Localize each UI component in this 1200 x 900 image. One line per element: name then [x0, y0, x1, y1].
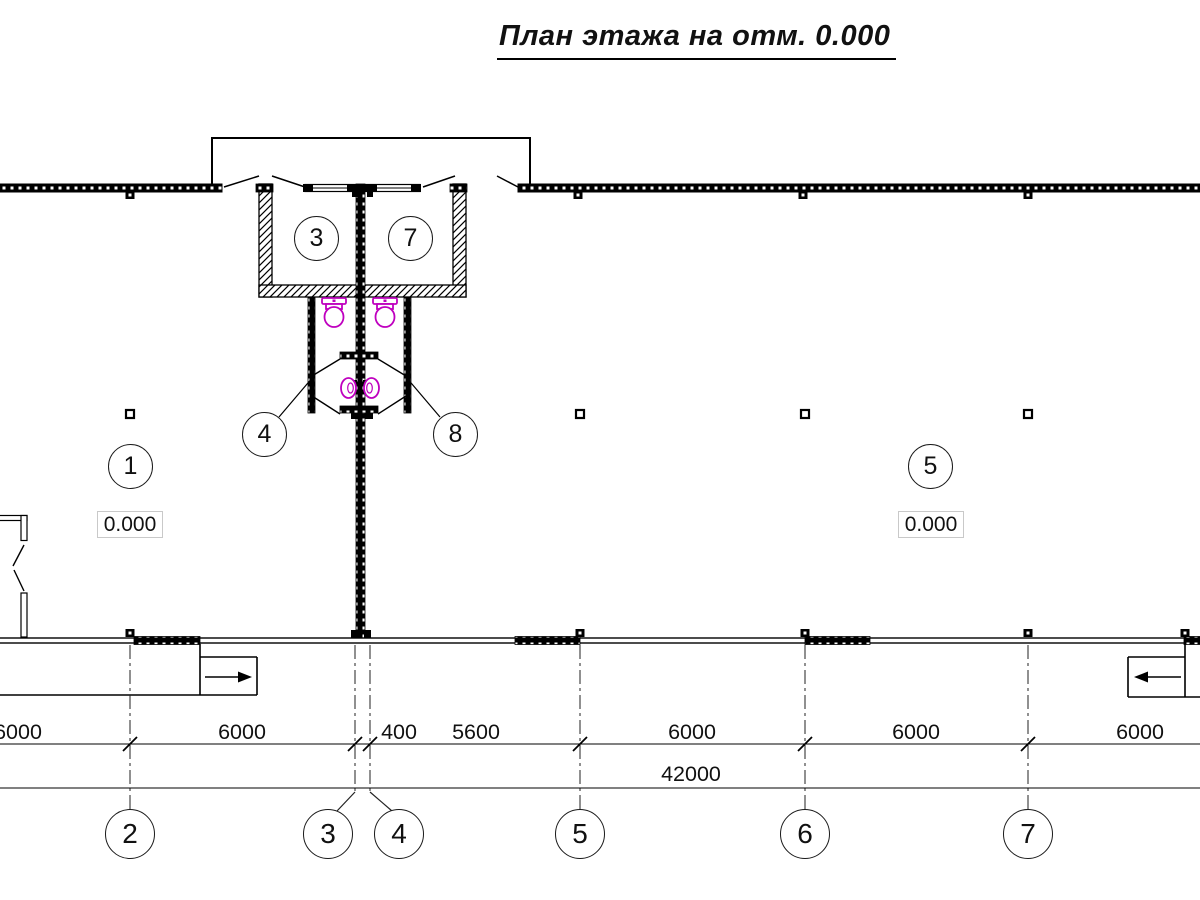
axis-bubble-leaders	[337, 792, 392, 811]
axis-bubble-2: 2	[105, 809, 155, 859]
bottom-exterior-wall	[0, 629, 1200, 645]
room-tag-label: 1	[124, 452, 138, 481]
plan-linework	[0, 0, 1200, 900]
dimension-label: 6000	[644, 720, 740, 744]
top-exterior-wall	[0, 184, 1200, 199]
total-dimension-label: 42000	[643, 762, 739, 786]
floor-plan-canvas: План этажа на отм. 0.000 1 3 7 4 8 5 0.0…	[0, 0, 1200, 900]
dimension-lines	[0, 744, 1200, 788]
dimension-label: 6000	[1092, 720, 1188, 744]
room-tag-8: 8	[433, 412, 478, 457]
axis-label: 7	[1020, 818, 1036, 850]
dimension-label: 6000	[194, 720, 290, 744]
room-tag-1: 1	[108, 444, 153, 489]
elevation-value: 0.000	[104, 513, 157, 537]
axis-label: 2	[122, 818, 138, 850]
dimension-label: 6000	[868, 720, 964, 744]
room-tag-7: 7	[388, 216, 433, 261]
room-tag-label: 7	[404, 224, 418, 253]
toilet-icon	[373, 298, 397, 327]
dimension-label: 6000	[0, 720, 66, 744]
room-tag-label: 5	[924, 452, 938, 481]
room-tag-5: 5	[908, 444, 953, 489]
toilet-icon	[322, 298, 346, 327]
room-tag-label: 3	[310, 224, 324, 253]
dimension-label: 400	[375, 720, 423, 744]
axis-bubble-6: 6	[780, 809, 830, 859]
elevation-mark: 0.000	[97, 511, 163, 538]
axis-bubble-5: 5	[555, 809, 605, 859]
axis-bubble-4: 4	[374, 809, 424, 859]
left-entrance-door	[0, 516, 27, 638]
elevation-mark: 0.000	[898, 511, 964, 538]
canopy-outline	[212, 138, 530, 184]
axis-label: 6	[797, 818, 813, 850]
drawing-title-text: План этажа на отм. 0.000	[497, 20, 896, 60]
axis-label: 5	[572, 818, 588, 850]
elevation-value: 0.000	[905, 513, 958, 537]
axis-bubble-7: 7	[1003, 809, 1053, 859]
vestibule-right	[1128, 644, 1200, 697]
room-tag-label: 8	[449, 420, 463, 449]
vestibule-left	[0, 644, 257, 695]
dimension-label: 5600	[428, 720, 524, 744]
axis-bubble-3: 3	[303, 809, 353, 859]
axis-label: 3	[320, 818, 336, 850]
drawing-title: План этажа на отм. 0.000	[497, 20, 896, 60]
room-tag-3: 3	[294, 216, 339, 261]
bottom-wall-column-markers	[126, 629, 1190, 637]
axis-label: 4	[391, 818, 407, 850]
room-tag-4: 4	[242, 412, 287, 457]
room-tag-label: 4	[258, 420, 272, 449]
